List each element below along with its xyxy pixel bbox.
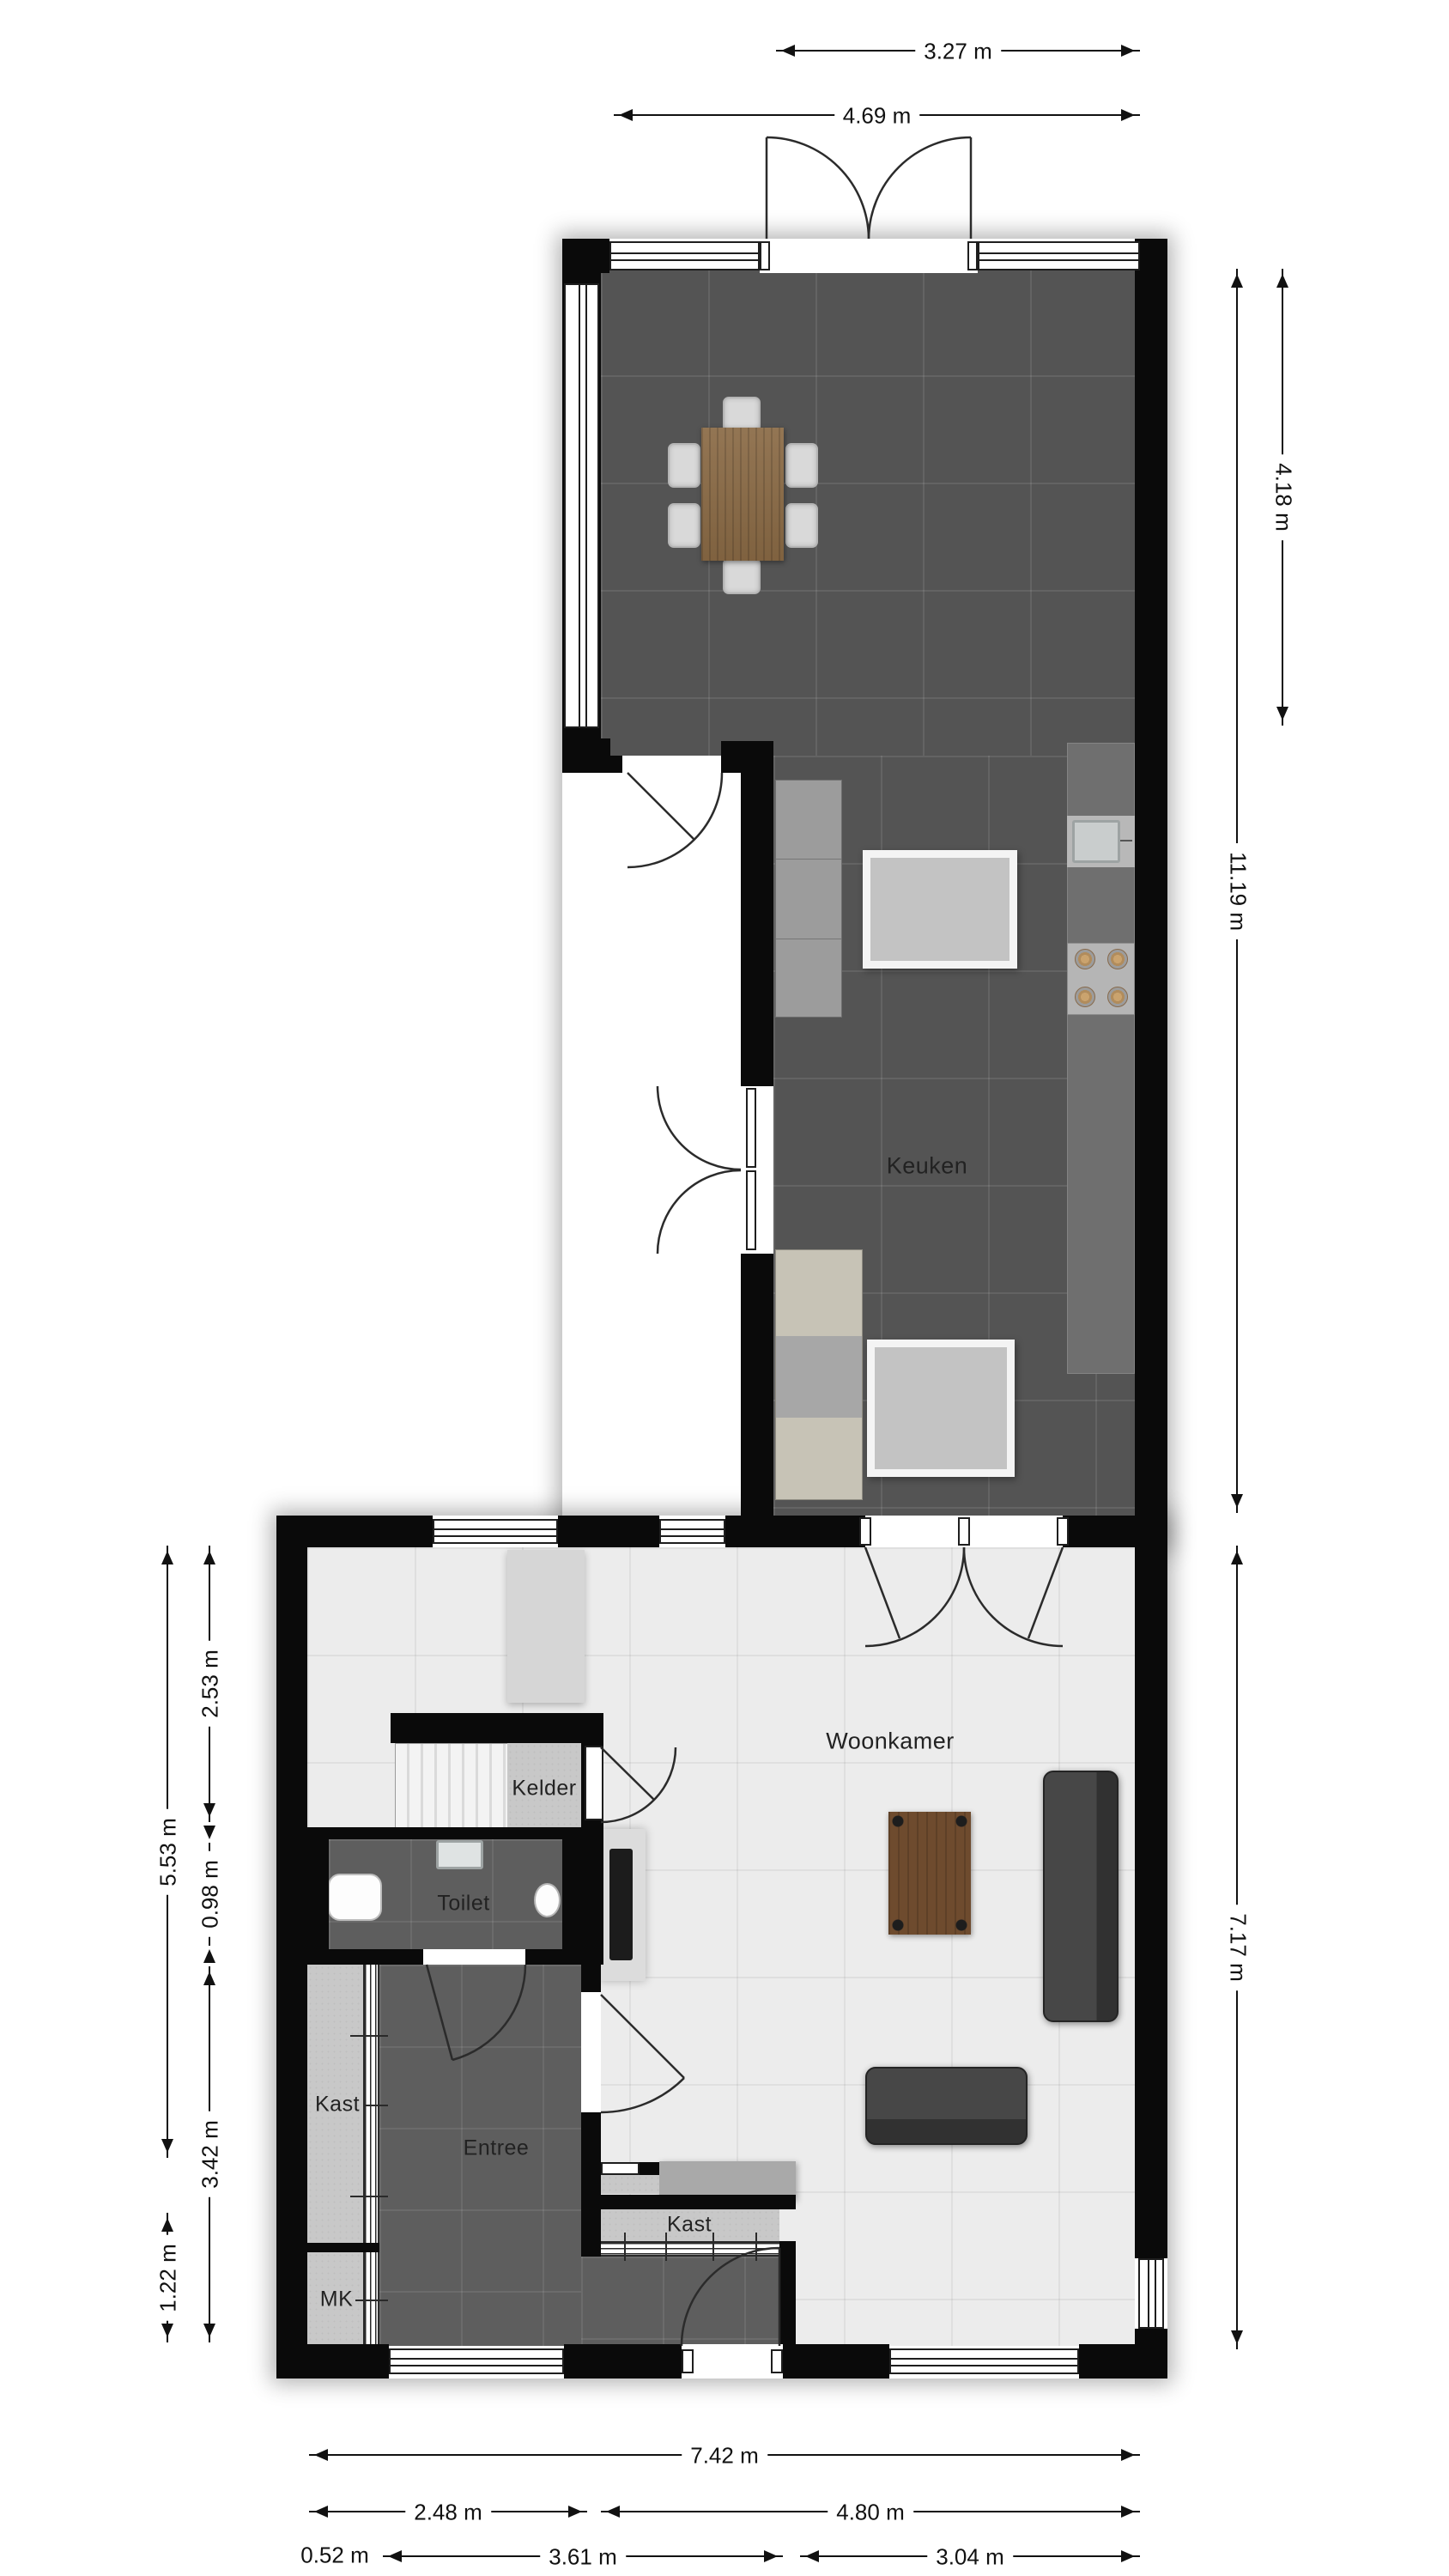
door-jamb xyxy=(859,1517,871,1546)
window xyxy=(889,2348,1079,2374)
dim-right-717: 7.17 m xyxy=(1236,1546,1238,2349)
door-jamb xyxy=(958,1517,970,1546)
doorway xyxy=(760,239,978,273)
wall xyxy=(276,2344,389,2379)
dining-chair xyxy=(723,558,761,594)
wall xyxy=(1079,2344,1167,2379)
dim-label: 3.42 m xyxy=(197,2111,224,2197)
floorplan-canvas: Keuken Woonkamer Kelder Toilet Entree Ka… xyxy=(0,0,1449,2576)
dim-left-122: 1.22 m xyxy=(167,2213,168,2342)
door-jamb xyxy=(682,2349,694,2373)
window xyxy=(609,241,760,270)
toilet-radiator xyxy=(328,1874,382,1921)
window xyxy=(389,2348,564,2374)
kast-hal-shelf xyxy=(363,1965,379,2243)
doorway xyxy=(581,1992,601,2112)
kitchen-sink xyxy=(1072,820,1120,863)
door-arc xyxy=(869,137,971,239)
dim-bottom-248: 2.48 m xyxy=(309,2511,587,2512)
dim-label: 1.22 m xyxy=(155,2235,182,2321)
wall xyxy=(601,2195,796,2209)
dim-label: 2.48 m xyxy=(405,2500,491,2526)
label-leader xyxy=(364,2105,388,2106)
mk-shelf xyxy=(363,2252,379,2344)
wall-cabinet xyxy=(507,1550,585,1703)
kast-woonkamer-shelf xyxy=(601,2241,779,2257)
wall xyxy=(783,2344,889,2379)
dim-left-553: 5.53 m xyxy=(167,1546,168,2158)
rail-tick xyxy=(712,2233,714,2261)
sofa-two-seat xyxy=(865,2067,1028,2145)
wall xyxy=(307,1839,329,1949)
wall xyxy=(558,1516,659,1547)
room-label-woonkamer: Woonkamer xyxy=(826,1728,955,1755)
burner xyxy=(1107,987,1128,1007)
dim-bottom-304: 3.04 m xyxy=(800,2555,1140,2557)
kitchen-island-north xyxy=(863,850,1017,969)
stove xyxy=(1067,943,1135,1015)
burner xyxy=(1075,987,1095,1007)
door-leaf xyxy=(746,1170,756,1250)
burner xyxy=(1075,949,1095,969)
wall xyxy=(276,1547,307,2346)
burner xyxy=(1107,949,1128,969)
dining-chair xyxy=(785,503,818,548)
room-label-kelder: Kelder xyxy=(512,1777,576,1801)
kitchen-cabinet-lower xyxy=(775,1249,863,1500)
floor-entree-south xyxy=(581,2257,779,2346)
rail-tick xyxy=(350,2035,388,2037)
coffee-table xyxy=(888,1812,971,1935)
kitchen-island-south xyxy=(867,1340,1015,1477)
label-leader xyxy=(355,2300,388,2301)
dining-chair xyxy=(785,443,818,488)
kast-hatch-post xyxy=(640,2162,659,2175)
rail-tick xyxy=(755,2233,757,2261)
room-label-entree: Entree xyxy=(464,2136,530,2161)
doorway xyxy=(423,1949,525,1965)
dim-label: 5.53 m xyxy=(155,1809,182,1895)
door-frame xyxy=(585,1746,603,1820)
dim-label: 3.27 m xyxy=(915,39,1001,65)
door-jamb xyxy=(967,241,978,270)
kast-hatch xyxy=(601,2162,640,2175)
kitchen-faucet xyxy=(1120,840,1132,841)
rail-tick xyxy=(350,2196,388,2197)
wall xyxy=(307,1827,603,1839)
tv-screen xyxy=(609,1849,633,1960)
kitchen-cabinet-upper xyxy=(775,780,842,1018)
wall xyxy=(725,1516,865,1547)
sofa-three-seat xyxy=(1043,1771,1119,2022)
dim-top-327: 3.27 m xyxy=(776,50,1140,52)
room-label-mk: MK xyxy=(320,2287,354,2312)
door-jamb xyxy=(1057,1517,1069,1546)
dim-right-418: 4.18 m xyxy=(1282,269,1283,726)
door-jamb xyxy=(760,241,770,270)
dim-label: 3.04 m xyxy=(927,2544,1013,2571)
wall xyxy=(741,773,773,1086)
kast-nook xyxy=(601,2175,659,2194)
dim-label: 4.18 m xyxy=(1270,454,1297,540)
dim-label: 7.42 m xyxy=(682,2443,767,2470)
dim-left-342: 3.42 m xyxy=(209,1966,210,2342)
toilet-bowl xyxy=(534,1883,561,1917)
wall xyxy=(276,1516,433,1547)
window xyxy=(659,1519,725,1544)
dim-label: 4.80 m xyxy=(828,2500,913,2526)
room-label-kast-hal: Kast xyxy=(315,2093,360,2117)
wall xyxy=(562,756,622,773)
dim-left-253: 2.53 m xyxy=(209,1546,210,1822)
cabinet-segment xyxy=(776,939,841,939)
dim-label: 4.69 m xyxy=(834,103,920,130)
window xyxy=(564,283,599,728)
dim-right-1119: 11.19 m xyxy=(1236,269,1238,1513)
window xyxy=(1138,2258,1164,2329)
door-leaf xyxy=(746,1088,756,1168)
wall xyxy=(307,2243,379,2252)
room-label-toilet: Toilet xyxy=(437,1892,489,1917)
dim-label: 0.98 m xyxy=(197,1851,224,1937)
dim-label: 2.53 m xyxy=(197,1641,224,1727)
door-arc xyxy=(767,137,869,239)
dim-label: 7.17 m xyxy=(1225,1905,1252,1990)
dining-chair xyxy=(668,503,700,548)
room-label-keuken: Keuken xyxy=(887,1153,968,1180)
rail-tick xyxy=(624,2233,626,2261)
cellar-stairs xyxy=(395,1743,509,1829)
wall xyxy=(779,2241,796,2346)
dim-bottom-052: 0.52 m xyxy=(295,2543,374,2569)
window xyxy=(433,1519,558,1544)
cabinet-segment xyxy=(776,1336,862,1418)
dim-left-098: 0.98 m xyxy=(209,1843,210,1946)
wall xyxy=(721,741,773,773)
dim-top-469: 4.69 m xyxy=(614,114,1140,116)
doorway xyxy=(682,2344,783,2379)
wall xyxy=(1135,273,1167,2258)
toilet-sink xyxy=(436,1840,483,1869)
dining-chair xyxy=(668,443,700,488)
dim-bottom-742: 7.42 m xyxy=(309,2454,1140,2456)
dim-bottom-361: 3.61 m xyxy=(383,2555,783,2557)
wall xyxy=(564,2344,682,2379)
room-label-kast-woonkamer: Kast xyxy=(667,2213,712,2238)
wall xyxy=(1063,1516,1135,1547)
window xyxy=(978,241,1140,270)
cabinet-segment xyxy=(776,859,841,860)
wall xyxy=(562,239,609,273)
door-jamb xyxy=(771,2349,783,2373)
dim-label: 3.61 m xyxy=(540,2544,626,2571)
dim-bottom-480: 4.80 m xyxy=(601,2511,1140,2512)
doorway xyxy=(622,756,721,773)
wall xyxy=(391,1713,603,1743)
dim-label: 11.19 m xyxy=(1225,842,1252,939)
wall xyxy=(741,1254,773,1516)
dining-table xyxy=(701,428,784,561)
wall xyxy=(562,1839,603,1949)
